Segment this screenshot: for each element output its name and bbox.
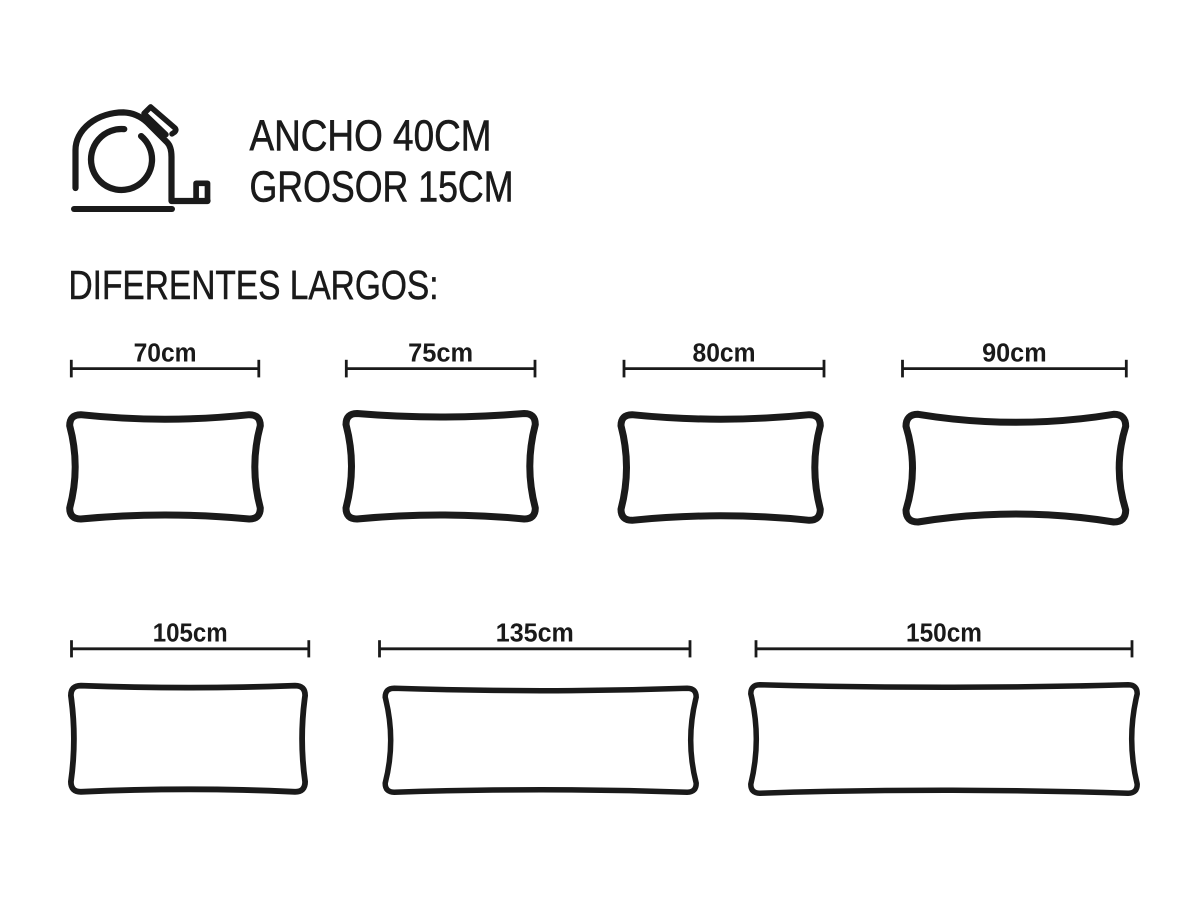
svg-text:GROSOR 15CM: GROSOR 15CM xyxy=(250,163,514,211)
svg-text:70cm: 70cm xyxy=(134,339,197,367)
svg-text:ANCHO 40CM: ANCHO 40CM xyxy=(250,113,492,161)
svg-text:90cm: 90cm xyxy=(982,339,1047,367)
svg-text:150cm: 150cm xyxy=(906,619,982,647)
svg-text:105cm: 105cm xyxy=(153,619,228,647)
svg-text:135cm: 135cm xyxy=(496,619,574,647)
svg-text:80cm: 80cm xyxy=(693,339,756,367)
svg-text:75cm: 75cm xyxy=(408,339,473,367)
svg-text:DIFERENTES LARGOS:: DIFERENTES LARGOS: xyxy=(69,262,439,308)
